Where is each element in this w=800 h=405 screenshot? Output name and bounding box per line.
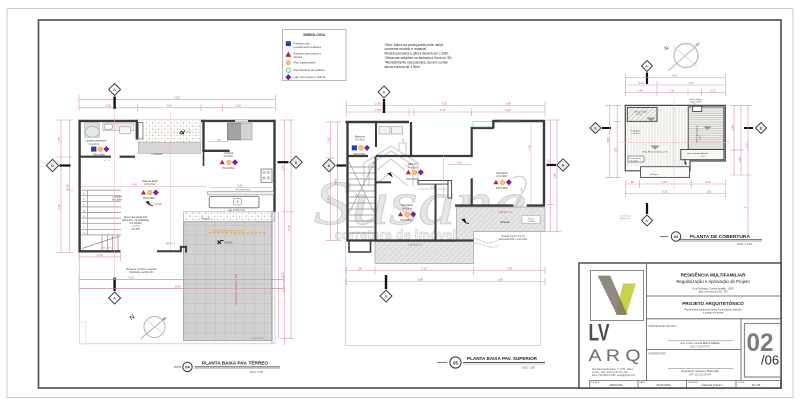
svg-text:Telha Fibrocimento: Telha Fibrocimento (696, 125, 699, 143)
svg-text:10 .10: 10 .10 (104, 160, 111, 162)
svg-text:h=0,18: h=0,18 (155, 204, 163, 206)
svg-text:A': A' (645, 219, 649, 223)
svg-text:i= 1%: i= 1% (700, 156, 705, 158)
svg-text:Lavabo/Lavanderia: Lavabo/Lavanderia (86, 140, 107, 143)
svg-text:W= 300l: W= 300l (630, 160, 638, 162)
svg-text:PD=2,80m: PD=2,80m (496, 187, 508, 190)
svg-text:Dormitório: Dormitório (401, 204, 413, 207)
svg-text:3,98: 3,98 (417, 278, 423, 282)
svg-text:1,40: 1,40 (637, 89, 643, 93)
svg-text:06/11/2020: 06/11/2020 (657, 383, 671, 387)
svg-text:Paredes com: Paredes com (294, 42, 311, 46)
svg-text:03: 03 (674, 234, 679, 239)
svg-text:04: 04 (185, 365, 190, 370)
svg-text:i= 5%: i= 5% (636, 114, 641, 116)
svg-text:PLANTA DE COBERTURA: PLANTA DE COBERTURA (690, 234, 750, 239)
svg-text:2,97: 2,97 (281, 165, 285, 171)
svg-text:1,06x(h)1,10: 1,06x(h)1,10 (408, 244, 422, 247)
svg-text:Laje c/ BIT i=1%: Laje c/ BIT i=1% (228, 210, 245, 212)
svg-text:PLANTA BAIXA PAV. TÉRREO: PLANTA BAIXA PAV. TÉRREO (202, 359, 269, 366)
svg-text:*Obs: Altura da porta janela p: *Obs: Altura da porta janela pode variar (385, 43, 444, 47)
svg-text:3,28: 3,28 (661, 180, 667, 184)
svg-text:8,70: 8,70 (287, 225, 291, 231)
svg-text:(fachada) e acrílico 3m: (fachada) e acrílico 3m (129, 271, 153, 274)
svg-text:Cozinha: Cozinha (224, 151, 234, 155)
svg-text:2,95: 2,95 (497, 278, 503, 282)
svg-text:conforme modelo e material.: conforme modelo e material. (385, 47, 427, 51)
svg-text:2,50: 2,50 (528, 145, 531, 150)
svg-text:Dormitório: Dormitório (496, 172, 508, 175)
svg-text:3,35: 3,35 (327, 197, 331, 203)
svg-text:5,17: 5,17 (744, 142, 748, 148)
svg-text:Paredes com reboco e: Paredes com reboco e (294, 51, 322, 55)
svg-text:Revestimento: Revestimento (236, 189, 251, 192)
svg-text:PD=2,80m: PD=2,80m (407, 178, 419, 181)
svg-text:1,07: 1,07 (405, 165, 410, 168)
svg-text:revestimento cerâmico: revestimento cerâmico (294, 45, 322, 49)
svg-text:2,75: 2,75 (440, 108, 446, 112)
svg-text:1,40: 1,40 (57, 137, 61, 143)
svg-text:1,06x(h)1,10: 1,06x(h)1,10 (498, 211, 512, 214)
svg-text:1,70: 1,70 (402, 138, 405, 143)
svg-text:3,97: 3,97 (613, 147, 617, 153)
svg-text:1,90: 1,90 (375, 101, 381, 105)
svg-text:8,06: 8,06 (672, 74, 678, 78)
svg-text:5,60: 5,60 (606, 137, 610, 143)
svg-text:A: A (383, 90, 386, 95)
svg-text:3,30: 3,30 (441, 101, 447, 105)
svg-text:(géia) à 45: (géia) à 45 (620, 218, 630, 220)
svg-text:PD=2,80m: PD=2,80m (401, 219, 413, 222)
svg-text:1,90: 1,90 (235, 104, 241, 108)
svg-text:2,61: 2,61 (457, 162, 462, 165)
svg-text:PLANTA BAIXA PAV. SUPERIOR: PLANTA BAIXA PAV. SUPERIOR (467, 356, 538, 361)
svg-text:Banheiro: Banheiro (355, 135, 366, 138)
svg-text:A=9,35m²: A=9,35m² (223, 155, 233, 158)
svg-text:(PD-2,80 + .72 (abóbada)): (PD-2,80 + .72 (abóbada)) (122, 220, 149, 222)
svg-text:A R Q: A R Q (589, 347, 641, 365)
svg-text:Recuo da escada 3,60: Recuo da escada 3,60 (124, 217, 148, 219)
svg-text:5,88: 5,88 (238, 185, 243, 188)
svg-text:Modelo persiana e altura dever: Modelo persiana e altura deverá ser 2,30… (385, 52, 450, 56)
svg-text:LIXEIRA: LIXEIRA (152, 152, 163, 156)
svg-text:B: B (328, 163, 331, 168)
svg-text:3,60: 3,60 (166, 104, 172, 108)
svg-text:Projeção pavimento superior: Projeção pavimento superior (212, 230, 244, 233)
svg-text:PD=2,80m: PD=2,80m (223, 167, 235, 170)
svg-text:ESC 1:50: ESC 1:50 (522, 366, 535, 370)
svg-text:6,30: 6,30 (174, 96, 180, 100)
svg-text:Varanda: Varanda (500, 220, 510, 224)
svg-text:*Observar detalhes na fachada: *Observar detalhes na fachada e fotos do… (385, 56, 453, 60)
svg-text:B: B (562, 163, 565, 168)
svg-text:5,30: 5,30 (66, 184, 70, 190)
svg-text:Laje Impermeabilizada: Laje Impermeabilizada (687, 152, 709, 155)
svg-text:PD=2,80m: PD=2,80m (354, 153, 366, 156)
svg-text:A: A (385, 294, 388, 299)
svg-text:RESIDÊNCIA MULTIFAMILIAR: RESIDÊNCIA MULTIFAMILIAR (681, 271, 747, 278)
svg-text:A': A' (645, 65, 649, 69)
svg-text:Pergolado: Pergolado (631, 130, 642, 133)
svg-text:A: A (113, 87, 116, 92)
svg-text:3,30: 3,30 (730, 125, 734, 131)
svg-text:3,40: 3,40 (57, 204, 61, 210)
svg-text:ESC 1:100: ESC 1:100 (737, 242, 752, 246)
svg-text:h=0,075: h=0,075 (131, 229, 140, 231)
svg-text:1,00: 1,00 (97, 253, 103, 257)
svg-text:Gabriela Schram: Gabriela Schram (702, 383, 724, 387)
svg-text:2,90: 2,90 (505, 101, 511, 105)
svg-text:CAU nº A137707-0: CAU nº A137707-0 (690, 345, 711, 349)
svg-text:RESPONSÁVEL TÉCNICO: RESPONSÁVEL TÉCNICO (649, 325, 677, 328)
svg-text:h=2,30m: h=2,30m (632, 133, 640, 135)
svg-text:2,91: 2,91 (706, 190, 712, 194)
svg-text:Fone: (53) 98407 1680 - lvarq@: Fone: (53) 98407 1680 - lvarq@gmail.com (592, 374, 635, 377)
svg-text:Empreend. Soares e Silva Ltda: Empreend. Soares e Silva Ltda (681, 369, 719, 373)
svg-text:L=30 h=17,4: L=30 h=17,4 (100, 248, 113, 250)
svg-text:B: B (51, 163, 54, 168)
svg-text:pintura: pintura (294, 55, 303, 59)
svg-text:DESENHO: DESENHO (688, 382, 699, 384)
svg-text:altura mínima de 1,50m: altura mínima de 1,50m (385, 65, 420, 69)
svg-text:+C 10%: +C 10% (131, 226, 139, 228)
svg-text:5,35: 5,35 (662, 190, 668, 194)
svg-text:2,72: 2,72 (710, 89, 716, 93)
svg-text:São Lourenço do Sul - RS: São Lourenço do Sul - RS (698, 291, 727, 294)
svg-text:2,38: 2,38 (506, 267, 512, 271)
svg-text:INDICADA: INDICADA (609, 383, 622, 387)
svg-text:A=10,21m²: A=10,21m² (144, 183, 156, 186)
svg-text:PD=2,80m: PD=2,80m (143, 197, 155, 200)
svg-text:Piso flutuante de madeira: Piso flutuante de madeira (294, 68, 326, 72)
svg-text:B: B (295, 160, 298, 165)
svg-text:i= 10%: i= 10% (699, 135, 701, 141)
svg-text:4,80: 4,80 (334, 179, 338, 185)
svg-text:,88: ,88 (630, 180, 634, 184)
svg-text:2,30: 2,30 (505, 108, 511, 112)
svg-text:PROJETO ARQUITETÔNICO: PROJETO ARQUITETÔNICO (682, 299, 744, 306)
svg-text:Alvenaria 0,80 + 0,40 vidro: Alvenaria 0,80 + 0,40 vidro (499, 238, 528, 241)
svg-text:Arq. e Urb. Letícia Mörch Rabê: Arq. e Urb. Letícia Mörch Rabêla (680, 341, 720, 345)
svg-text:LV: LV (589, 320, 610, 347)
svg-text:/06: /06 (761, 353, 779, 368)
svg-text:2,15: 2,15 (705, 180, 711, 184)
svg-text:ESC 1:50: ESC 1:50 (250, 370, 263, 374)
svg-text:Laje com reboco e pintura: Laje com reboco e pintura (294, 75, 326, 79)
svg-text:A: A (113, 296, 116, 301)
svg-text:Telha Fibro Cimento i= 1%: Telha Fibro Cimento i= 1% (642, 150, 668, 153)
svg-text:05: 05 (453, 360, 458, 365)
svg-text:SIMBOLOGIA: SIMBOLOGIA (303, 33, 325, 37)
svg-text:,95: ,95 (358, 267, 362, 271)
svg-text:8,45: 8,45 (175, 285, 181, 289)
svg-text:2,44: 2,44 (638, 81, 644, 85)
svg-text:2,95: 2,95 (375, 108, 381, 112)
svg-text:Marquise: Marquise (650, 173, 660, 176)
svg-text:1,45: 1,45 (327, 137, 331, 143)
svg-text:h=1,10(vão): h=1,10(vão) (129, 222, 142, 225)
svg-text:Regularização e Aprovação de P: Regularização e Aprovação de Projeto (676, 279, 750, 284)
svg-text:Sala de Estar: Sala de Estar (142, 179, 158, 183)
svg-text:FOLHA: FOLHA (738, 381, 746, 384)
svg-text:N=0,65: N=0,65 (225, 242, 233, 245)
svg-text:Pérgola: Pérgola (201, 217, 211, 221)
svg-text:ESCALA: ESCALA (591, 381, 600, 384)
svg-text:4,20: 4,20 (128, 276, 134, 280)
svg-text:1,85: 1,85 (737, 157, 741, 163)
svg-text:GARAGEM: GARAGEM (250, 336, 263, 340)
svg-text:A=11,68m²: A=11,68m² (496, 175, 507, 178)
svg-text:A=2,47m²: A=2,47m² (89, 143, 99, 146)
svg-text:CPF 123.221.575-04: CPF 123.221.575-04 (689, 373, 712, 376)
svg-text:Piso impermeável: Piso impermeável (294, 61, 316, 65)
svg-text:02 / 06: 02 / 06 (752, 383, 761, 387)
svg-text:(500L/1000L): (500L/1000L) (690, 101, 703, 103)
svg-text:*Revestimento nas paredes, dev: *Revestimento nas paredes, devem contar (385, 60, 449, 64)
svg-text:PROPRIETÁRIO: PROPRIETÁRIO (649, 353, 667, 356)
svg-text:4,30: 4,30 (132, 184, 137, 187)
svg-text:Rampa para Garagem i=20%: Rampa para Garagem i=20% (235, 273, 238, 305)
svg-text:Centro - São Lourenço do Sul -: Centro - São Lourenço do Sul - RS (592, 371, 628, 374)
svg-text:8,05: 8,05 (281, 272, 285, 278)
svg-text:3,23: 3,23 (421, 267, 427, 271)
svg-text:2,31: 2,31 (669, 89, 675, 93)
svg-text:4,61: 4,61 (187, 131, 192, 134)
svg-text:-1,08m²: -1,08m² (527, 220, 535, 223)
svg-text:4,12: 4,12 (688, 81, 694, 85)
svg-text:4,55: 4,55 (553, 173, 557, 179)
svg-text:Nível: Nível (529, 218, 534, 220)
svg-text:DATA: DATA (640, 381, 646, 384)
svg-text:A=3,21m²: A=3,21m² (355, 138, 365, 141)
svg-text:2,95: 2,95 (105, 104, 111, 108)
svg-text:e quadro de áreas: e quadro de áreas (703, 312, 724, 315)
svg-text:PD=2,80m: PD=2,80m (93, 154, 105, 157)
svg-text:A=8,05m²: A=8,05m² (402, 207, 412, 210)
